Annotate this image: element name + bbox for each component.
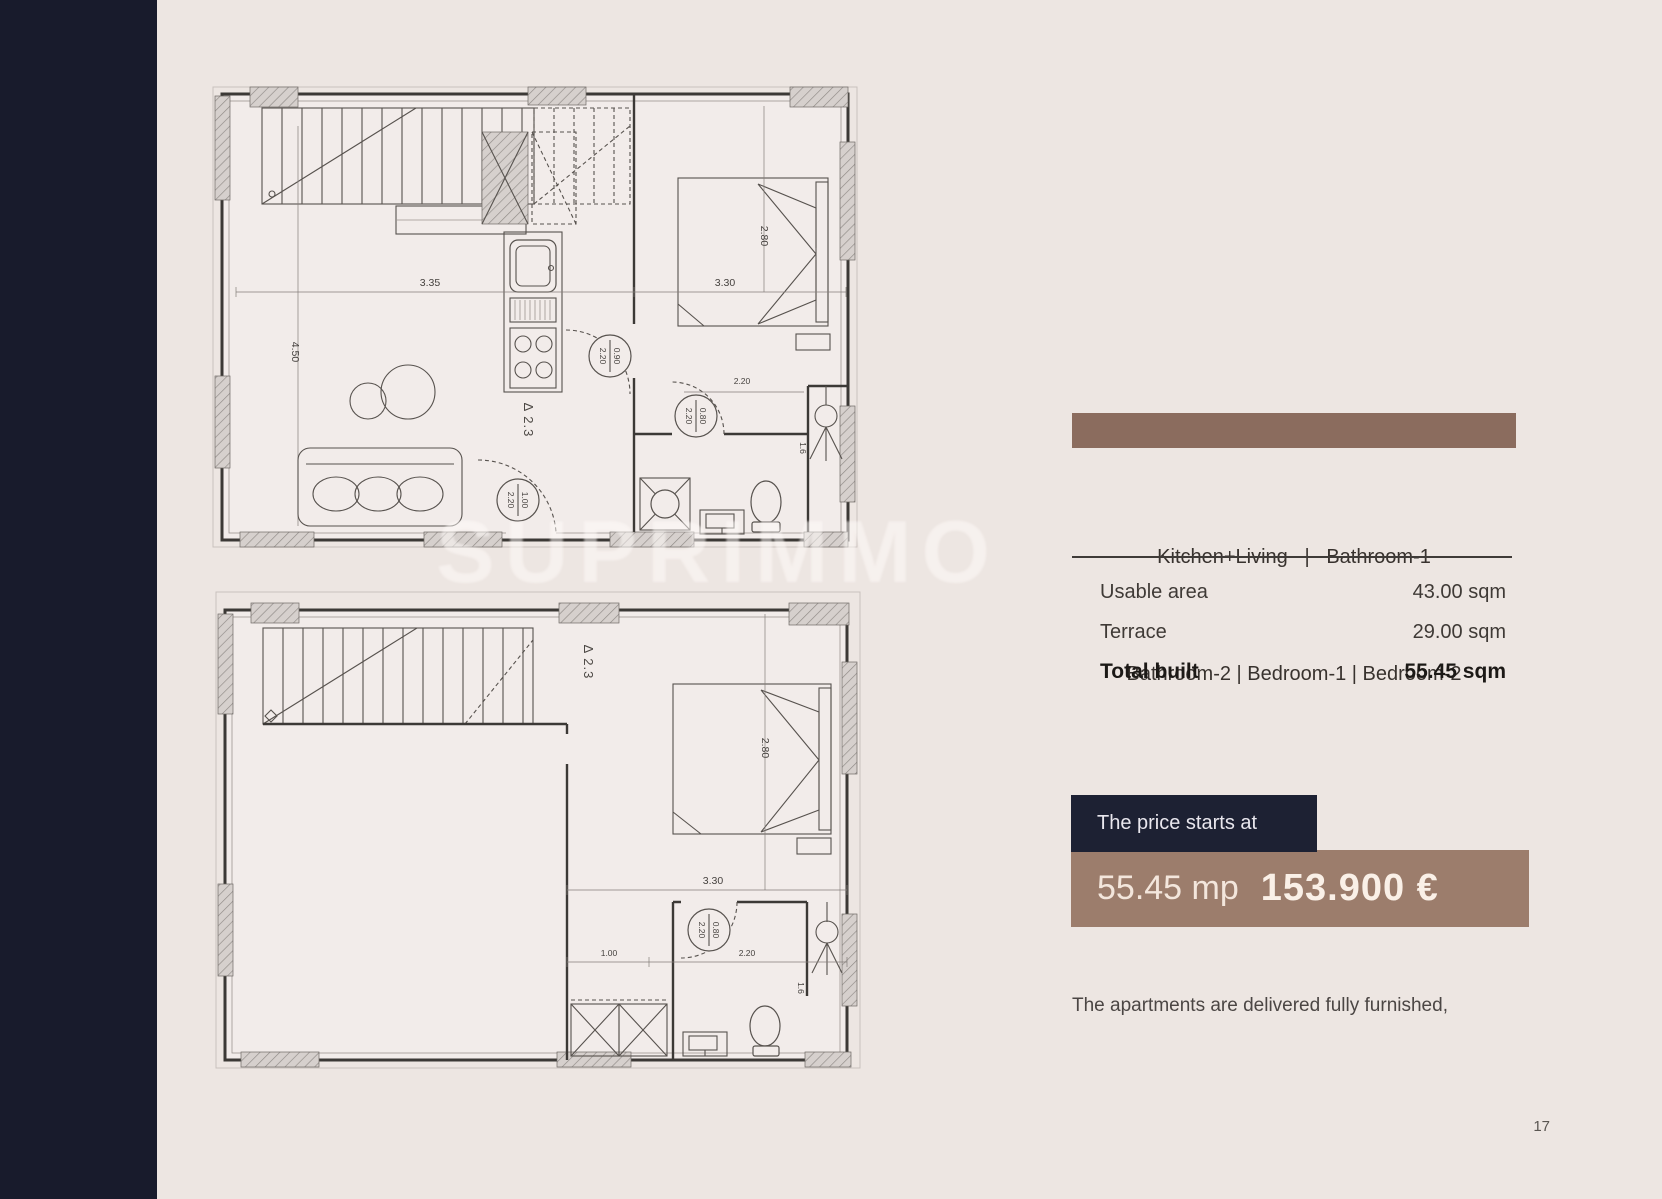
door-size-label-entry: 1.00 2.20	[497, 479, 539, 521]
level-label: Δ 2.3	[521, 403, 536, 438]
door-size-label-bathroom: 0.80 2.20	[675, 395, 717, 437]
svg-text:0.80: 0.80	[698, 408, 708, 425]
dim-living-width: 3.35	[420, 277, 441, 289]
dim-bed-height: 2.80	[758, 226, 770, 247]
area-label: Usable area	[1100, 572, 1208, 612]
area-value: 29.00 sqm	[1413, 612, 1506, 652]
svg-text:2.20: 2.20	[684, 408, 694, 425]
kitchen-sink	[510, 240, 556, 292]
dim-hall-width: 1.00	[601, 948, 618, 958]
toilet	[750, 1006, 780, 1056]
dim-bath-height: 1.6	[798, 442, 808, 454]
toilet	[751, 481, 781, 532]
page-number: 17	[1510, 1118, 1550, 1135]
price-box: 55.45 mp 153.900 €	[1071, 850, 1529, 927]
left-sidebar-strip	[0, 0, 157, 1199]
dim-bath-width: 2.20	[739, 948, 756, 958]
area-label: Terrace	[1100, 612, 1167, 652]
dim-bath-height: 1.6	[796, 982, 806, 994]
svg-text:1.00: 1.00	[520, 492, 530, 509]
dim-bedroom-width: 3.30	[715, 277, 736, 289]
dim-living-height: 4.50	[289, 342, 301, 363]
svg-text:0.90: 0.90	[612, 348, 622, 365]
price-starts-at-label: The price starts at	[1071, 795, 1317, 852]
door-size-label-bathroom: 0.80 2.20	[688, 909, 730, 951]
table-row: Usable area 43.00 sqm	[1072, 572, 1512, 612]
dim-bath-width: 2.20	[734, 376, 751, 386]
furnishing-note: The apartments are delivered fully furni…	[1072, 995, 1552, 1017]
door-size-label-bedroom: 0.90 2.20	[589, 335, 631, 377]
dim-bed-height: 2.80	[759, 738, 771, 759]
area-table: Usable area 43.00 sqm Terrace 29.00 sqm …	[1072, 572, 1512, 692]
price-area-value: 55.45 mp	[1097, 869, 1239, 908]
table-row-total: Total built 55.45 sqm	[1072, 652, 1512, 692]
area-label: Total built	[1100, 652, 1199, 692]
area-value: 55.45 sqm	[1404, 652, 1506, 692]
area-value: 43.00 sqm	[1413, 572, 1506, 612]
dim-bedroom-width: 3.30	[703, 875, 724, 887]
outer-walls	[216, 592, 860, 1068]
floor-plan-lower: 3.30 2.80 1.00 2.20 1.6 Δ 2.3 0.80 2.20	[213, 584, 863, 1076]
svg-text:2.20: 2.20	[598, 348, 608, 365]
brochure-page: 3.35 3.30 4.50 2.80 2.20 1.6 Δ 2.3 0.90 …	[0, 0, 1662, 1199]
divider-line	[1072, 556, 1512, 558]
price-amount: 153.900 €	[1261, 867, 1439, 910]
floor-plan-upper: 3.35 3.30 4.50 2.80 2.20 1.6 Δ 2.3 0.90 …	[210, 86, 860, 568]
svg-text:2.20: 2.20	[697, 922, 707, 939]
svg-text:2.20: 2.20	[506, 492, 516, 509]
level-label: Δ 2.3	[581, 645, 596, 680]
accent-bar	[1072, 413, 1516, 448]
table-row: Terrace 29.00 sqm	[1072, 612, 1512, 652]
svg-text:0.80: 0.80	[711, 922, 721, 939]
